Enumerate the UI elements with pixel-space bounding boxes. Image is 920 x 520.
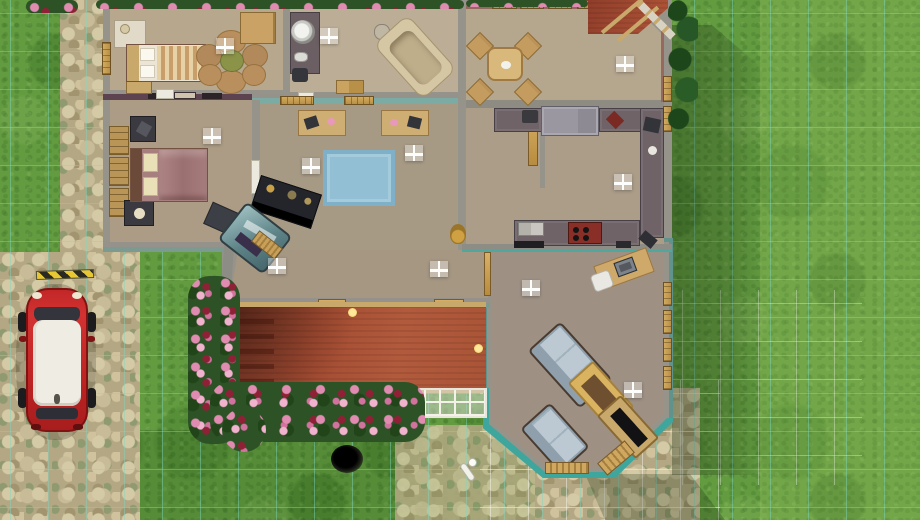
living-window[interactable] — [663, 282, 672, 306]
pillow — [143, 153, 158, 172]
car-body[interactable] — [26, 288, 88, 432]
activity-desk[interactable] — [298, 110, 346, 136]
bedroom1-side-window[interactable] — [102, 42, 111, 75]
porch-light[interactable] — [348, 308, 357, 317]
taillight — [73, 424, 83, 430]
ceiling-lamp[interactable] — [522, 280, 540, 296]
living-door[interactable] — [484, 252, 491, 296]
dining-table[interactable] — [487, 47, 523, 81]
living-window[interactable] — [663, 338, 672, 362]
car-wheel — [87, 312, 96, 332]
desk-machine — [407, 116, 422, 130]
rose-hedge-top[interactable] — [96, 0, 464, 9]
ceiling-lamp[interactable] — [320, 28, 338, 44]
bookcase[interactable] — [109, 157, 129, 186]
rear-window — [36, 408, 78, 419]
ceiling-lamp[interactable] — [302, 158, 320, 174]
bedroom1-door[interactable] — [156, 89, 174, 99]
headboard — [127, 45, 139, 81]
lot-overview — [0, 0, 920, 520]
sprinkler-head[interactable] — [468, 458, 477, 467]
refrigerator[interactable] — [541, 106, 599, 136]
wall-console[interactable] — [514, 241, 544, 248]
roof-beam-top — [232, 302, 486, 307]
wall-center-vertical — [458, 0, 466, 250]
kitchen-sink[interactable] — [518, 222, 544, 236]
rose-bush-corner[interactable] — [26, 0, 78, 13]
round-mirror[interactable] — [291, 20, 315, 44]
burner — [573, 235, 579, 241]
ceiling-lamp[interactable] — [203, 128, 221, 144]
window-bench[interactable] — [545, 462, 589, 474]
garden-hole[interactable] — [331, 445, 363, 473]
shrubs-right-wall[interactable] — [668, 0, 698, 132]
ceiling-lamp[interactable] — [268, 258, 286, 274]
pillow — [140, 65, 155, 78]
book — [136, 121, 152, 137]
brass-jug-planter[interactable] — [450, 224, 466, 244]
pillow — [140, 48, 155, 61]
table-lamp — [134, 208, 145, 219]
nightstand-dark[interactable] — [130, 116, 156, 142]
ceiling-lamp[interactable] — [616, 56, 634, 72]
car-wheel — [87, 388, 96, 408]
burner — [583, 235, 589, 241]
ceiling-lamp[interactable] — [430, 261, 448, 277]
rose-bush[interactable] — [222, 408, 266, 452]
nightstand-dark[interactable] — [124, 200, 154, 226]
porch-light[interactable] — [474, 344, 483, 353]
burner — [583, 227, 589, 233]
grass-dark-patch — [130, 430, 400, 520]
burner — [573, 227, 579, 233]
curio-item — [303, 197, 312, 206]
desk-machine — [304, 115, 320, 129]
mauve-blanket — [159, 150, 207, 200]
side-mirror — [87, 336, 95, 342]
taillight — [31, 424, 41, 430]
wall-bed1-bath — [283, 0, 290, 96]
trellis-shadow — [240, 312, 274, 384]
study-window[interactable] — [280, 96, 314, 105]
jar[interactable] — [648, 146, 657, 155]
vanity-stool[interactable] — [292, 68, 308, 82]
living-window[interactable] — [663, 310, 672, 334]
coffee-maker[interactable] — [522, 110, 538, 123]
ceiling-lamp[interactable] — [614, 174, 632, 190]
ceiling-lamp[interactable] — [624, 382, 642, 398]
wardrobe[interactable] — [240, 12, 276, 44]
table-lamp[interactable] — [120, 24, 130, 34]
sink[interactable] — [294, 52, 308, 62]
roof-detail — [54, 394, 60, 404]
bed-striped[interactable] — [126, 44, 206, 82]
living-window[interactable] — [663, 366, 672, 390]
small-appliance[interactable] — [643, 116, 662, 133]
activity-desk[interactable] — [381, 110, 429, 136]
headlight — [32, 292, 42, 299]
ceiling-lamp[interactable] — [216, 38, 234, 54]
bed-mauve[interactable] — [130, 148, 208, 202]
rose-hedge-top-right[interactable] — [466, 0, 588, 7]
wall-picture — [174, 92, 196, 99]
headboard — [131, 149, 142, 201]
curio-item — [286, 189, 297, 200]
pink-item — [327, 118, 335, 125]
stove[interactable] — [568, 222, 602, 244]
stone-path-left — [60, 0, 107, 262]
rug-petal — [242, 64, 266, 86]
pillow — [143, 177, 158, 196]
pink-item — [390, 119, 398, 126]
blue-rug[interactable] — [323, 150, 395, 206]
plate — [501, 61, 511, 69]
side-mirror — [19, 336, 27, 342]
headlight — [72, 292, 82, 299]
ceiling-lamp[interactable] — [405, 145, 423, 161]
curio-item — [265, 183, 275, 193]
storage-boxes[interactable] — [336, 80, 364, 94]
rug-petal — [198, 64, 222, 86]
study-window[interactable] — [344, 96, 374, 105]
bookcase[interactable] — [109, 126, 129, 155]
